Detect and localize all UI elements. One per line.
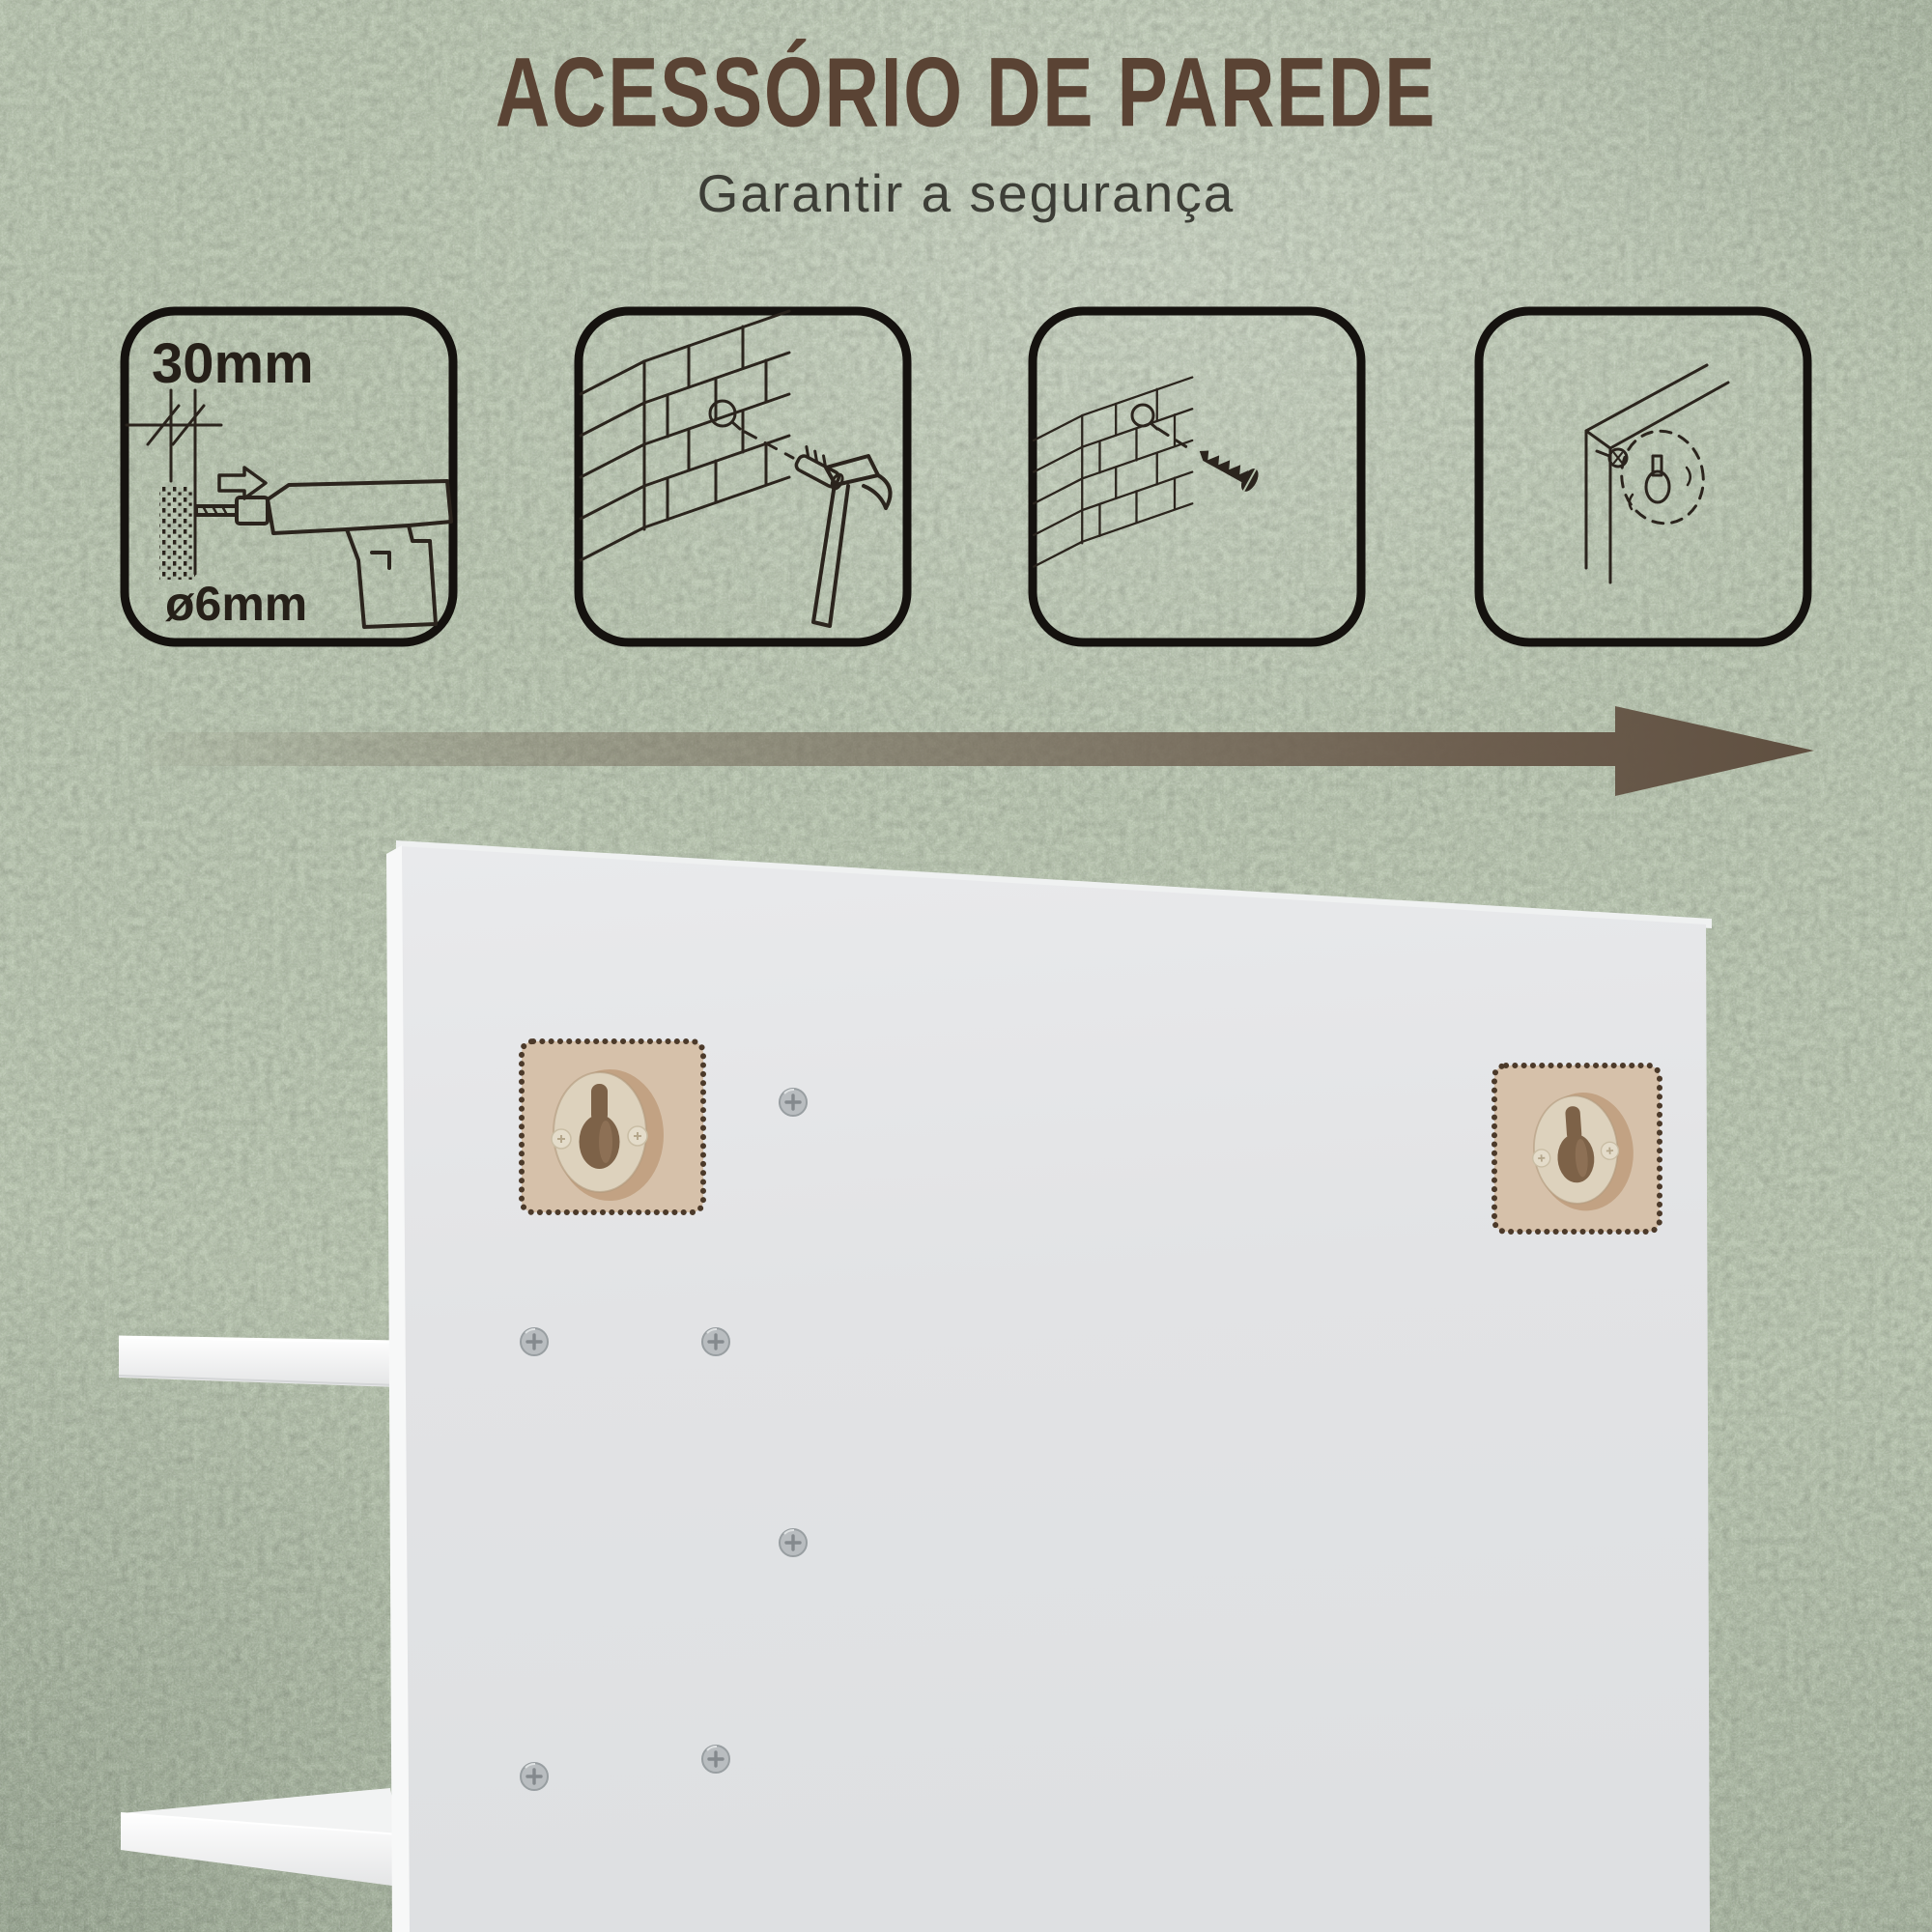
instruction-graphic: ACESSÓRIO DE PAREDE Garantir a segurança… (0, 0, 1932, 1932)
screw-icon (521, 1763, 548, 1790)
panel-scene (0, 0, 1932, 1932)
shelf-lower (121, 1788, 399, 1887)
screw-icon (702, 1328, 729, 1355)
screw-icon (521, 1328, 548, 1355)
panel-face (400, 846, 1710, 1932)
shelf-upper (119, 1336, 398, 1387)
keyhole-highlight-left (522, 1041, 703, 1212)
screw-icon (780, 1089, 807, 1116)
keyhole-highlight-right (1494, 1065, 1660, 1232)
right-arrow-icon (145, 706, 1814, 796)
cabinet-back-panel (386, 840, 1712, 1932)
screw-icon (702, 1746, 729, 1773)
screw-icon (780, 1529, 807, 1556)
